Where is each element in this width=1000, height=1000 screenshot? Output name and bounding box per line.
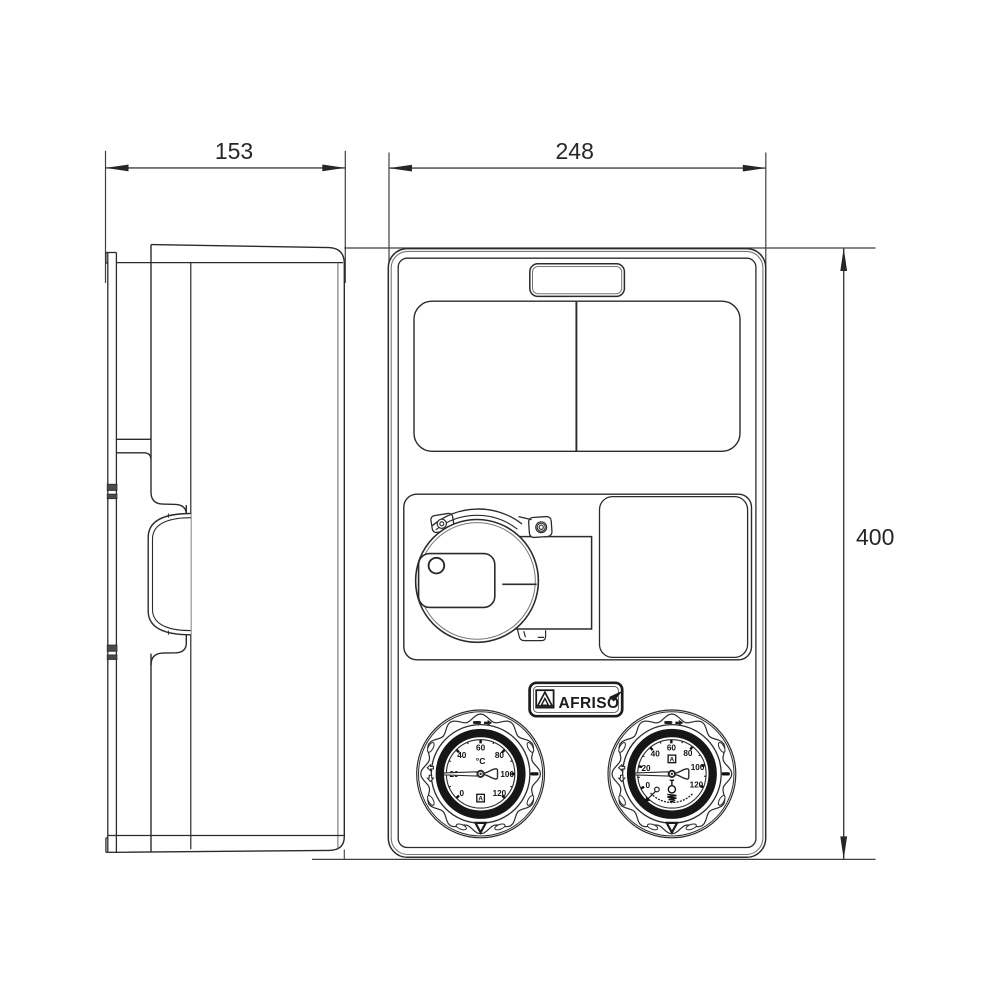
svg-text:80: 80 [495,751,505,760]
svg-text:20: 20 [641,764,651,773]
svg-text:248: 248 [556,138,594,164]
svg-text:400: 400 [856,524,894,550]
svg-text:40: 40 [651,749,661,758]
svg-text:A: A [670,757,675,764]
svg-text:80: 80 [683,749,693,758]
svg-text:0: 0 [460,789,465,798]
svg-text:0: 0 [646,781,651,790]
svg-text:60: 60 [476,743,486,752]
svg-text:40: 40 [457,751,467,760]
svg-text:153: 153 [215,138,253,164]
svg-text:A: A [478,796,483,803]
svg-text:120: 120 [690,780,704,789]
svg-text:120: 120 [493,789,507,798]
svg-text:°C: °C [476,756,486,766]
svg-text:60: 60 [667,743,677,752]
svg-text:100: 100 [691,763,705,772]
svg-text:100: 100 [500,770,514,779]
